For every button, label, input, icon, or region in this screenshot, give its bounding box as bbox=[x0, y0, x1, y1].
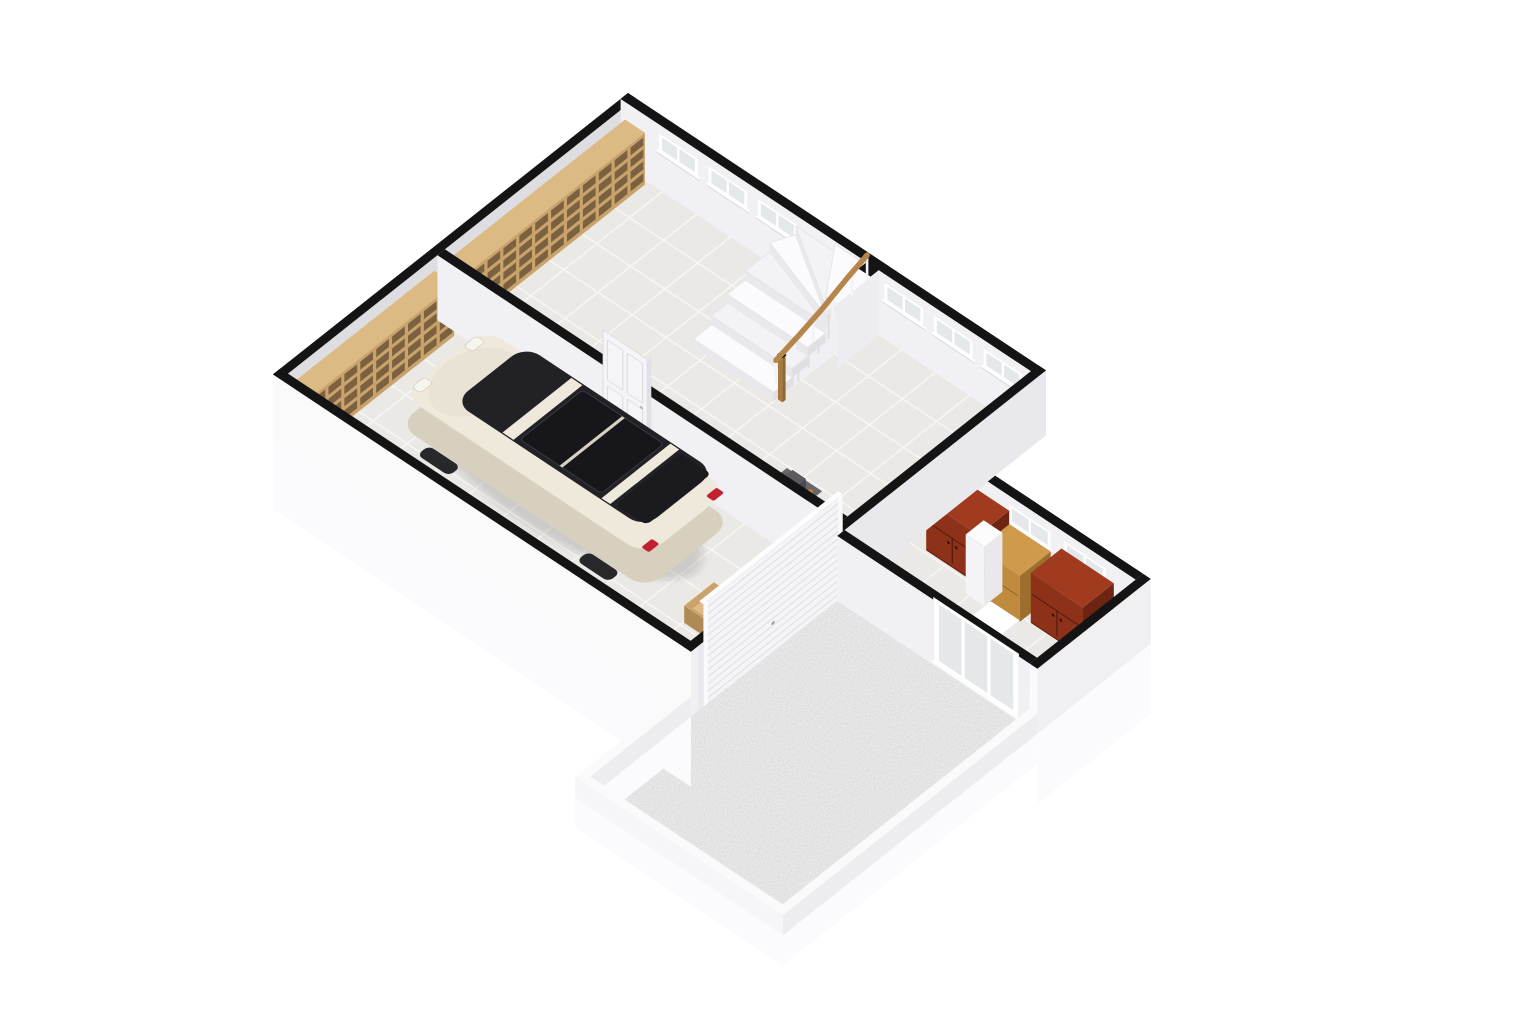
floorplan-figure: 3D isometric floor plan render - basemen… bbox=[0, 0, 1536, 1021]
floorplan-3d-render bbox=[0, 0, 1536, 1021]
column bbox=[966, 520, 1003, 606]
